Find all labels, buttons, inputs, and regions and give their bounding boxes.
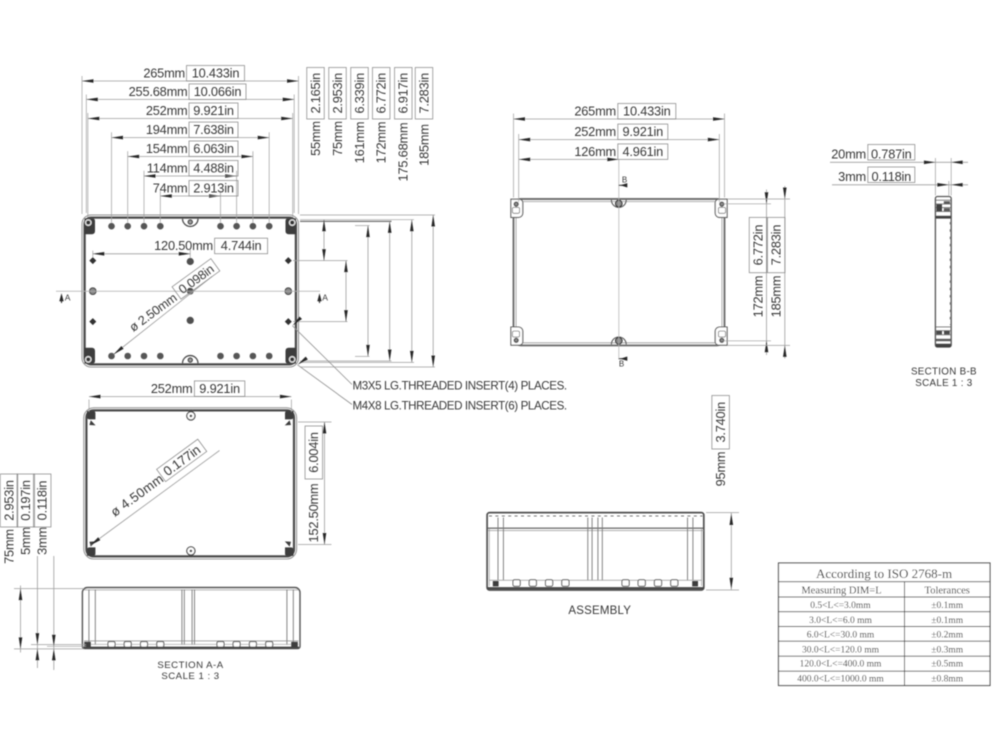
- svg-text:114mm: 114mm: [147, 161, 188, 176]
- svg-text:3.740in: 3.740in: [713, 402, 728, 443]
- svg-text:SCALE 1 : 3: SCALE 1 : 3: [161, 671, 219, 682]
- svg-text:10.066in: 10.066in: [194, 84, 242, 99]
- svg-text:7.638in: 7.638in: [193, 122, 234, 137]
- svg-text:265mm: 265mm: [574, 104, 616, 119]
- svg-text:185mm: 185mm: [769, 276, 784, 318]
- svg-text:120.0<L<=400.0 mm: 120.0<L<=400.0 mm: [800, 659, 882, 669]
- svg-text:185mm: 185mm: [416, 124, 431, 166]
- svg-text:126mm: 126mm: [574, 144, 616, 159]
- svg-text:M4X8 LG.THREADED INSERT(6) PLA: M4X8 LG.THREADED INSERT(6) PLACES.: [353, 399, 567, 412]
- svg-text:2.913in: 2.913in: [193, 181, 234, 196]
- svg-text:A: A: [322, 292, 328, 302]
- svg-text:175.68mm: 175.68mm: [396, 123, 411, 182]
- svg-text:172mm: 172mm: [374, 122, 389, 164]
- svg-text:194mm: 194mm: [146, 122, 188, 137]
- svg-text:M3X5 LG.THREADED INSERT(4) PLA: M3X5 LG.THREADED INSERT(4) PLACES.: [353, 379, 567, 392]
- svg-text:B: B: [622, 175, 627, 184]
- svg-text:A: A: [65, 292, 71, 302]
- svg-text:4.961in: 4.961in: [623, 144, 664, 159]
- svg-text:6.063in: 6.063in: [193, 141, 234, 156]
- svg-text:ASSEMBLY: ASSEMBLY: [568, 605, 631, 617]
- svg-text:10.433in: 10.433in: [623, 104, 671, 119]
- svg-text:252mm: 252mm: [151, 381, 193, 396]
- svg-text:2.953in: 2.953in: [1, 480, 16, 521]
- svg-text:172mm: 172mm: [750, 276, 765, 318]
- svg-text:B: B: [619, 360, 624, 369]
- svg-text:6.917in: 6.917in: [396, 73, 411, 114]
- svg-text:4.744in: 4.744in: [221, 238, 262, 253]
- svg-text:±0.2mm: ±0.2mm: [931, 631, 963, 641]
- svg-text:252mm: 252mm: [574, 124, 616, 139]
- svg-text:9.921in: 9.921in: [623, 124, 664, 139]
- svg-text:SECTION B-B: SECTION B-B: [911, 367, 977, 378]
- svg-text:3mm: 3mm: [35, 527, 50, 555]
- svg-text:3.0<L<=6.0 mm: 3.0<L<=6.0 mm: [809, 616, 872, 626]
- svg-text:0.118in: 0.118in: [871, 169, 911, 184]
- svg-text:120.50mm: 120.50mm: [154, 238, 213, 253]
- svg-text:6.0<L<=30.0 mm: 6.0<L<=30.0 mm: [807, 631, 875, 641]
- svg-text:9.921in: 9.921in: [193, 103, 234, 118]
- svg-text:6.772in: 6.772in: [374, 73, 389, 114]
- svg-text:2.165in: 2.165in: [308, 73, 323, 114]
- svg-text:255.68mm: 255.68mm: [129, 84, 188, 99]
- svg-text:55mm: 55mm: [308, 121, 323, 156]
- svg-text:10.433in: 10.433in: [192, 66, 240, 81]
- svg-text:6.004in: 6.004in: [306, 432, 321, 473]
- svg-text:9.921in: 9.921in: [199, 381, 240, 396]
- svg-text:20mm: 20mm: [831, 147, 866, 162]
- svg-text:252mm: 252mm: [146, 103, 188, 118]
- svg-text:0.5<L<=3.0mm: 0.5<L<=3.0mm: [810, 601, 871, 611]
- svg-text:6.772in: 6.772in: [750, 225, 765, 266]
- svg-text:152.50mm: 152.50mm: [306, 484, 321, 543]
- svg-text:75mm: 75mm: [1, 529, 16, 564]
- svg-text:0.197in: 0.197in: [18, 480, 33, 521]
- svg-text:SCALE 1 : 3: SCALE 1 : 3: [915, 378, 972, 389]
- svg-text:0.118in: 0.118in: [35, 481, 50, 521]
- svg-text:400.0<L<=1000.0 mm: 400.0<L<=1000.0 mm: [797, 674, 884, 684]
- svg-text:±0.5mm: ±0.5mm: [931, 659, 963, 669]
- svg-text:Tolerances: Tolerances: [925, 585, 970, 596]
- svg-text:±0.1mm: ±0.1mm: [931, 601, 963, 611]
- svg-text:95mm: 95mm: [713, 452, 728, 487]
- svg-text:7.283in: 7.283in: [416, 73, 431, 114]
- svg-text:30.0<L<=120.0 mm: 30.0<L<=120.0 mm: [802, 645, 880, 655]
- svg-text:154mm: 154mm: [146, 141, 188, 156]
- svg-text:±0.1mm: ±0.1mm: [931, 616, 963, 626]
- svg-text:74mm: 74mm: [153, 181, 188, 196]
- svg-text:7.283in: 7.283in: [769, 225, 784, 266]
- svg-text:SECTION A-A: SECTION A-A: [157, 660, 223, 671]
- svg-text:±0.8mm: ±0.8mm: [931, 674, 963, 684]
- svg-text:161mm: 161mm: [352, 122, 367, 164]
- svg-text:3mm: 3mm: [838, 169, 866, 184]
- svg-text:6.339in: 6.339in: [352, 73, 367, 114]
- svg-text:According to ISO 2768-m: According to ISO 2768-m: [816, 566, 952, 581]
- svg-text:4.488in: 4.488in: [193, 161, 234, 176]
- svg-text:±0.3mm: ±0.3mm: [931, 645, 963, 655]
- svg-text:0.787in: 0.787in: [871, 147, 912, 162]
- svg-text:2.953in: 2.953in: [330, 73, 345, 114]
- svg-text:265mm: 265mm: [143, 66, 185, 81]
- svg-text:75mm: 75mm: [330, 121, 345, 156]
- svg-text:Measuring DIM=L: Measuring DIM=L: [801, 585, 881, 596]
- svg-text:5mm: 5mm: [18, 527, 33, 555]
